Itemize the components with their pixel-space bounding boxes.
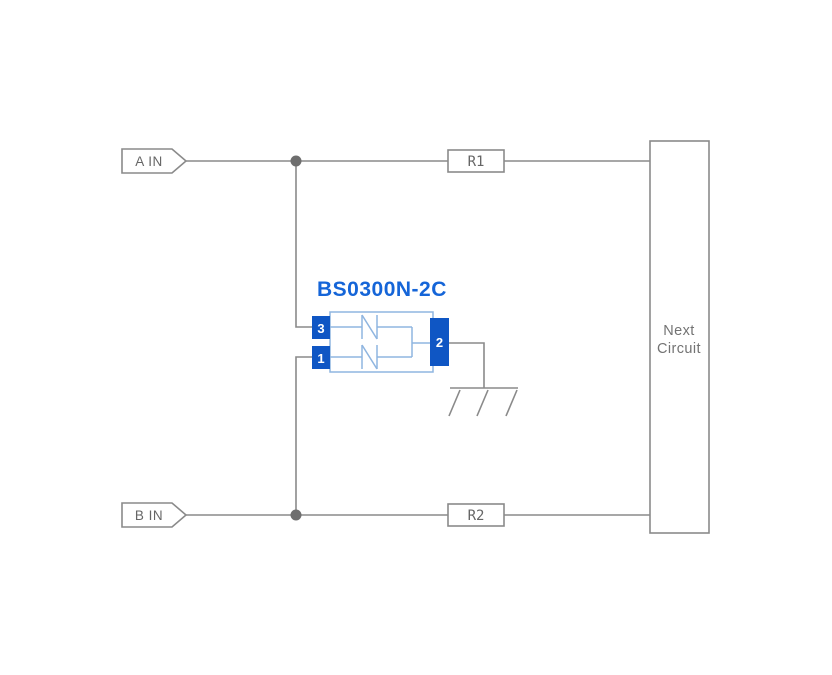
pin-1-number: 1 bbox=[317, 351, 324, 366]
resistor-r1-label: R1 bbox=[468, 154, 485, 170]
wire-b-to-pin1 bbox=[296, 357, 312, 515]
component-body bbox=[330, 312, 433, 372]
schematic-canvas: A IN B IN R1 R2 Next Circuit BS0300N-2C bbox=[0, 0, 832, 675]
input-tag-a: A IN bbox=[122, 149, 186, 173]
next-circuit-label-line1: Next bbox=[663, 323, 694, 339]
pin-3-number: 3 bbox=[317, 321, 324, 336]
next-circuit-label-line2: Circuit bbox=[657, 341, 701, 357]
resistor-r2-label: R2 bbox=[468, 508, 485, 524]
junction-dot-b bbox=[291, 510, 302, 521]
ground-symbol bbox=[449, 343, 518, 416]
junction-dot-a bbox=[291, 156, 302, 167]
wire-a-to-pin3 bbox=[296, 161, 312, 327]
wire-net-a bbox=[186, 161, 650, 327]
wire-pin2-to-ground bbox=[449, 343, 484, 388]
application-circuit-diagram: A IN B IN R1 R2 Next Circuit BS0300N-2C bbox=[0, 0, 832, 675]
resistor-r1: R1 bbox=[448, 150, 504, 172]
input-tag-a-label: A IN bbox=[135, 154, 163, 169]
resistor-r2: R2 bbox=[448, 504, 504, 526]
ground-hash-3 bbox=[506, 390, 517, 416]
wire-net-b bbox=[186, 357, 650, 515]
ground-hash-2 bbox=[477, 390, 488, 416]
input-tag-b: B IN bbox=[122, 503, 186, 527]
input-tag-b-label: B IN bbox=[135, 508, 163, 523]
component-title: BS0300N-2C bbox=[317, 278, 447, 301]
ground-hash-1 bbox=[449, 390, 460, 416]
pin-2-number: 2 bbox=[436, 335, 443, 350]
next-circuit-block: Next Circuit bbox=[650, 141, 709, 533]
tvs-component: BS0300N-2C bbox=[312, 278, 449, 372]
